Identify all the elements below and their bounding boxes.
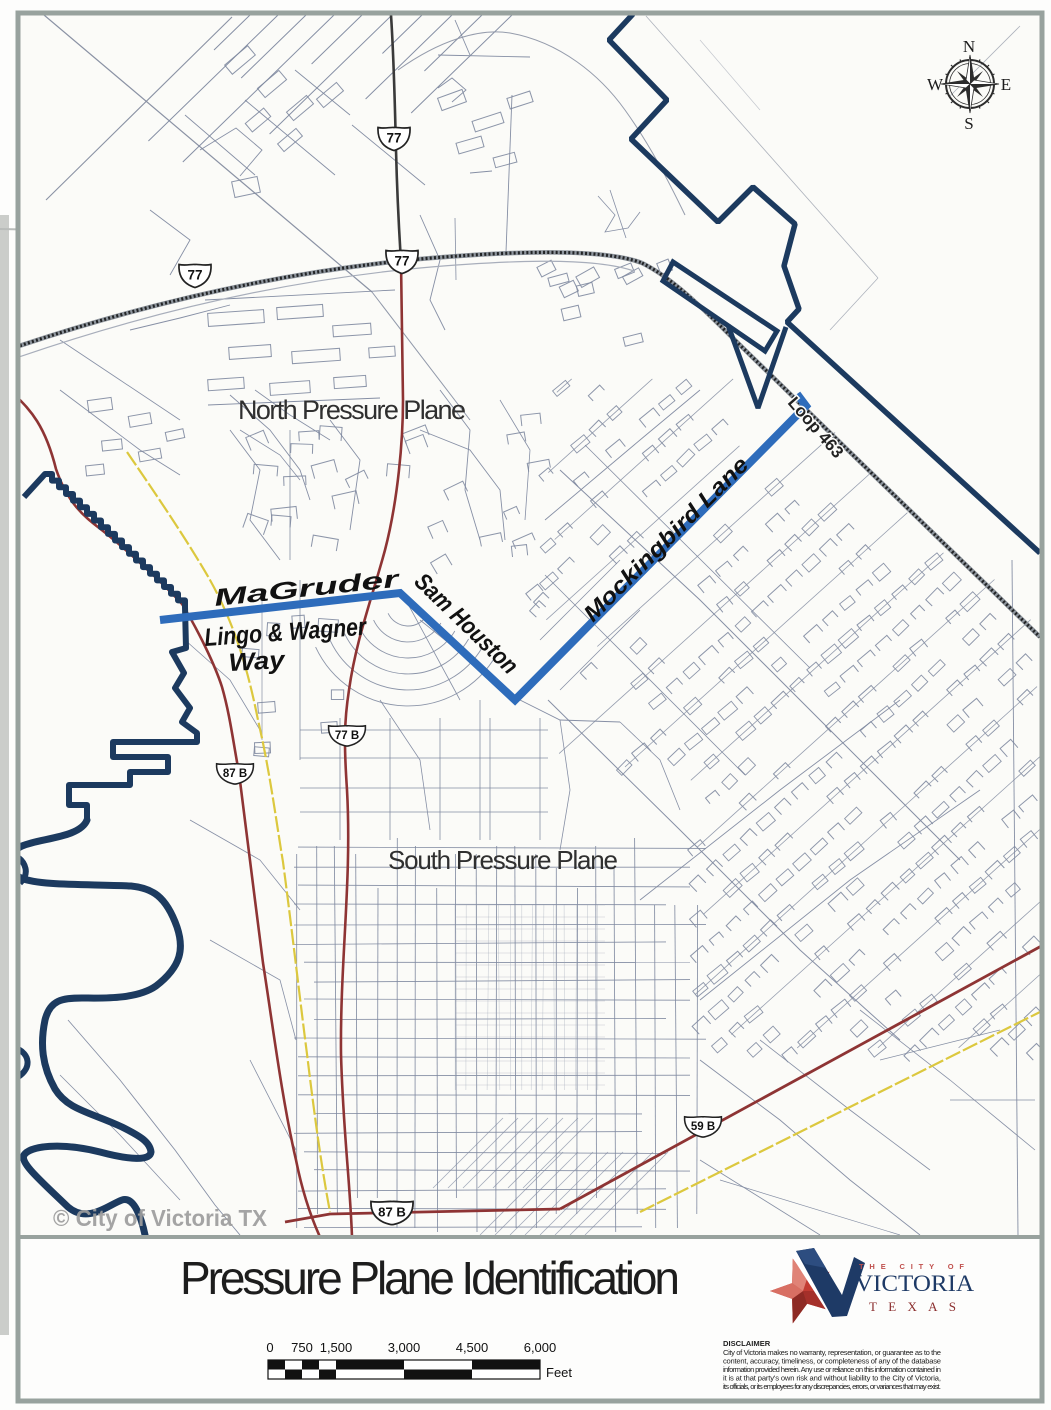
svg-text:© City of Victoria TX: © City of Victoria TX (53, 1205, 268, 1231)
svg-text:DISCLAIMER: DISCLAIMER (723, 1339, 771, 1348)
svg-text:59 B: 59 B (691, 1121, 715, 1133)
svg-text:77 B: 77 B (335, 730, 359, 742)
svg-text:TEXAS: TEXAS (869, 1299, 964, 1314)
svg-text:Pressure Plane Identification: Pressure Plane Identification (180, 1252, 680, 1304)
svg-text:1,500: 1,500 (320, 1340, 353, 1355)
svg-text:North Pressure Plane: North Pressure Plane (238, 395, 466, 425)
svg-text:77: 77 (386, 131, 401, 146)
svg-text:South Pressure Plane: South Pressure Plane (388, 845, 618, 875)
svg-text:VICTORIA: VICTORIA (855, 1271, 974, 1296)
svg-text:W: W (927, 75, 944, 94)
svg-text:87 B: 87 B (378, 1205, 406, 1220)
svg-text:S: S (964, 114, 973, 133)
svg-text:Feet: Feet (546, 1365, 572, 1380)
svg-text:0: 0 (266, 1340, 273, 1355)
svg-text:4,500: 4,500 (456, 1340, 489, 1355)
svg-text:THE CITY OF: THE CITY OF (859, 1262, 969, 1271)
svg-text:87 B: 87 B (223, 768, 247, 780)
svg-text:750: 750 (291, 1340, 313, 1355)
svg-text:77: 77 (394, 254, 409, 269)
svg-text:77: 77 (187, 268, 202, 283)
svg-text:N: N (963, 37, 975, 56)
svg-text:E: E (1001, 75, 1011, 94)
svg-text:its officials, or its employee: its officials, or its employees for any … (723, 1382, 941, 1391)
svg-text:Way: Way (228, 646, 287, 677)
svg-text:3,000: 3,000 (388, 1340, 421, 1355)
svg-text:6,000: 6,000 (524, 1340, 557, 1355)
